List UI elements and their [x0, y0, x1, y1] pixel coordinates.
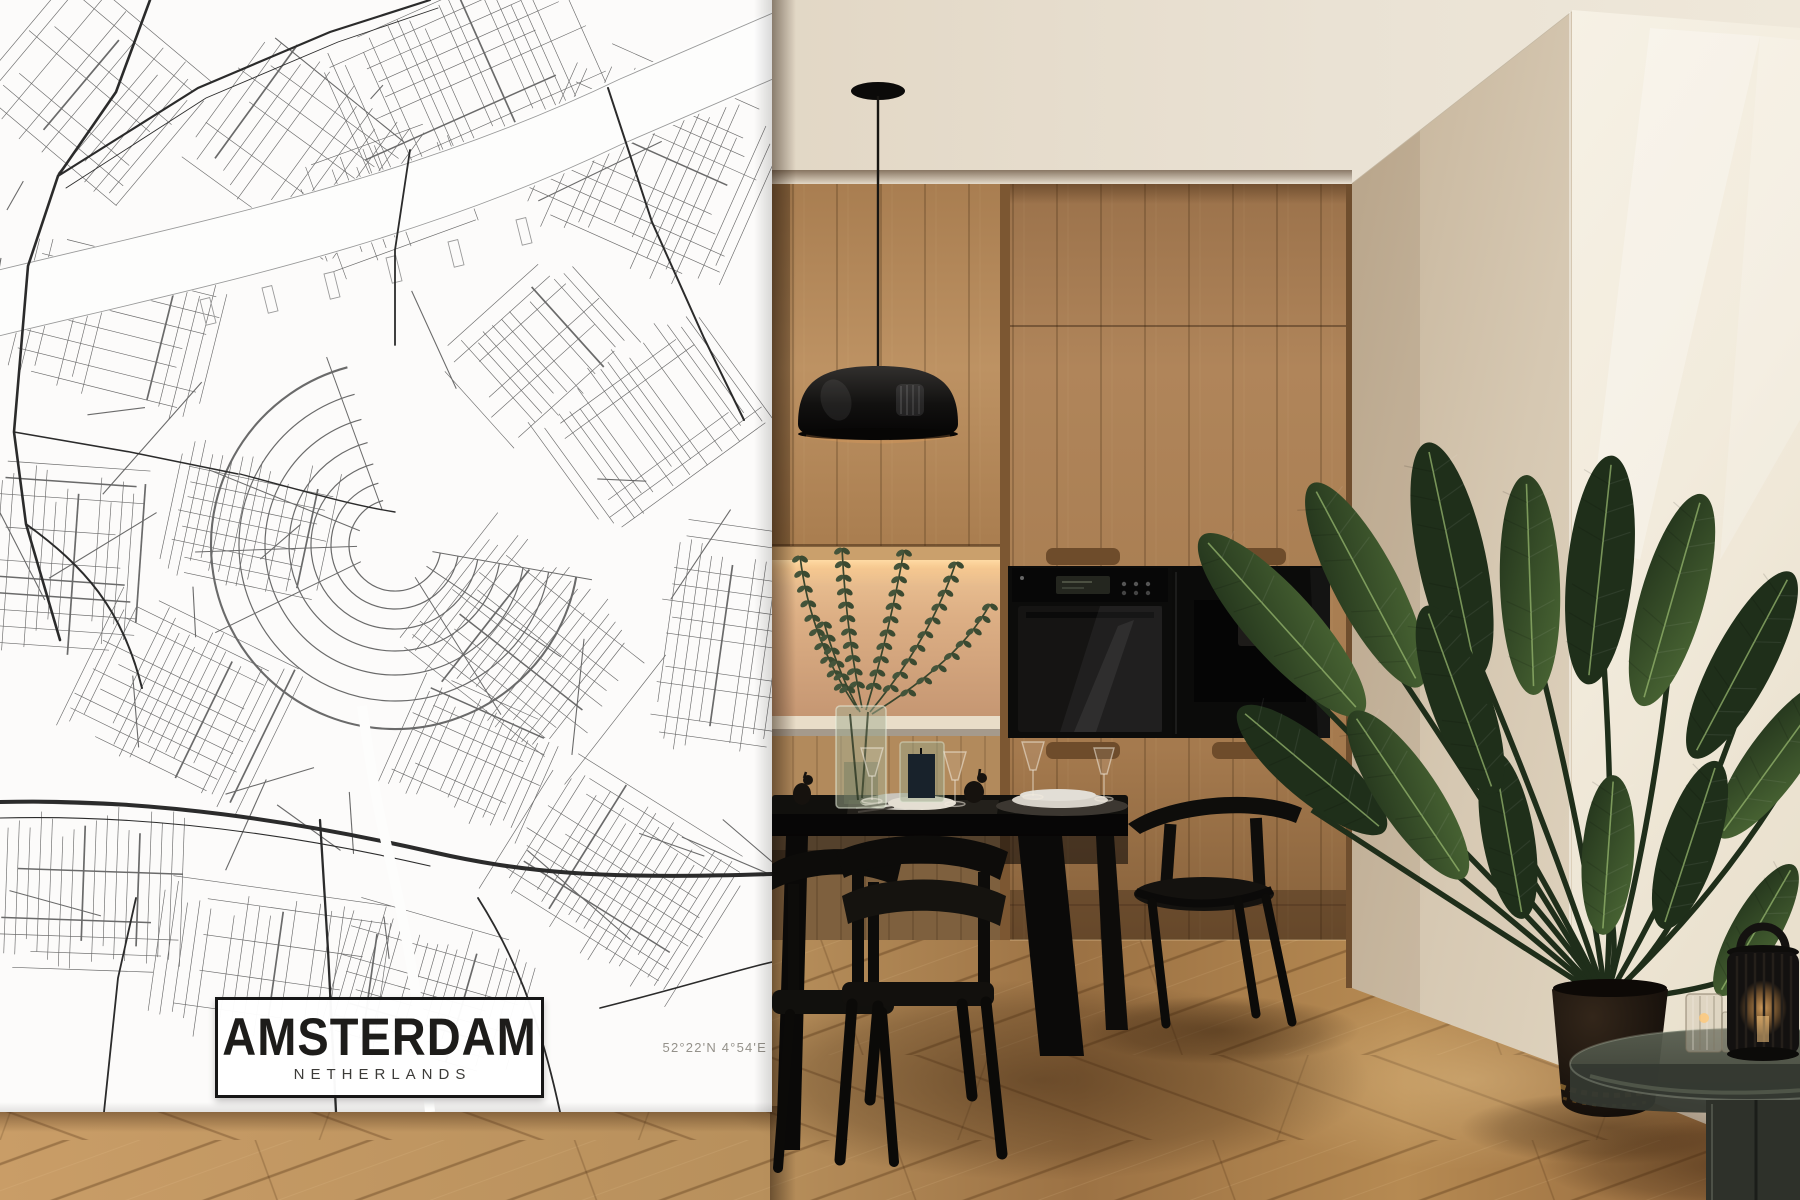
- poster-title-box: AMSTERDAM NETHERLANDS: [215, 997, 544, 1098]
- lantern: [1727, 927, 1799, 1062]
- candle-flame-glow: [1699, 1013, 1709, 1023]
- poster-coordinates: 52°22'N 4°54'E: [585, 1040, 767, 1055]
- city-street-map: [0, 0, 772, 1112]
- poster-title: AMSTERDAM: [222, 1010, 536, 1063]
- pendant-lamp: [798, 82, 958, 442]
- poster-subtitle: NETHERLANDS: [288, 1066, 472, 1083]
- table-setting: [791, 546, 1128, 816]
- amsterdam-map-poster: AMSTERDAM NETHERLANDS 52°22'N 4°54'E: [0, 0, 772, 1112]
- candle: [908, 754, 935, 798]
- table-leg: [1018, 836, 1084, 1056]
- dining-chair: [836, 836, 1008, 1161]
- eucalyptus-branches: [791, 546, 999, 714]
- table-leg: [1096, 836, 1128, 1030]
- interior-photo: AMSTERDAM NETHERLANDS 52°22'N 4°54'E: [0, 0, 1800, 1200]
- dining-chair: [1128, 797, 1302, 1024]
